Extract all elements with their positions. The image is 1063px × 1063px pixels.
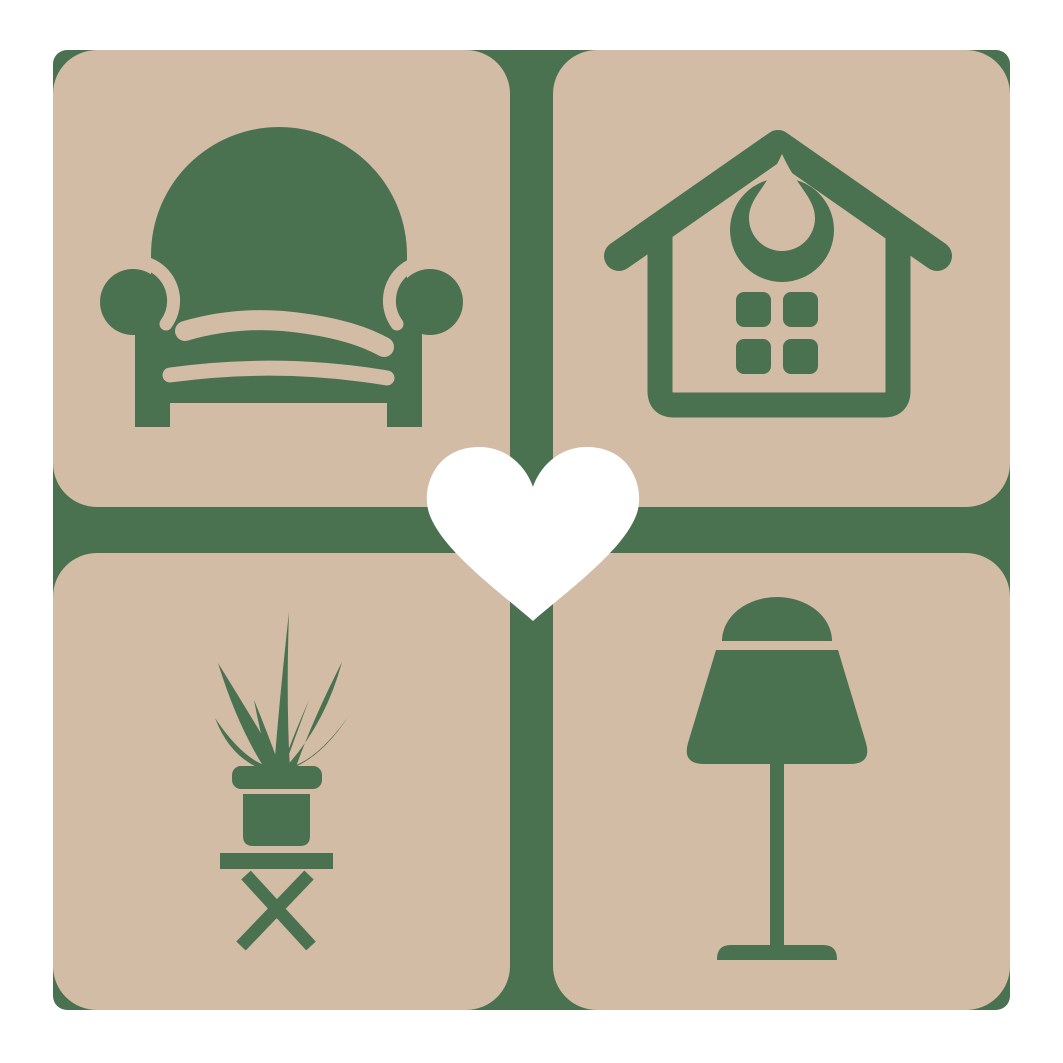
tile-armchair [53,50,510,507]
house-window [736,292,818,374]
pot-body [243,794,310,846]
plant-leaves [215,612,348,769]
heart-shape [427,447,639,621]
lamp-dome-cap [722,597,832,641]
tile-house [553,50,1010,507]
lamp-stem [770,758,784,948]
armchair-body [100,127,463,427]
armchair-left-armrest [100,269,166,335]
table-x-legs [241,875,311,946]
armchair-right-armrest [397,269,463,335]
table-top [220,853,333,869]
lamp-shade [687,650,868,764]
heart-icon [421,443,645,625]
pot-rim [232,766,322,789]
lamp-base [717,945,837,960]
armchair-icon [53,50,510,507]
logo-canvas [0,0,1063,1063]
plant-pot [232,766,322,846]
house-icon [553,50,1010,507]
